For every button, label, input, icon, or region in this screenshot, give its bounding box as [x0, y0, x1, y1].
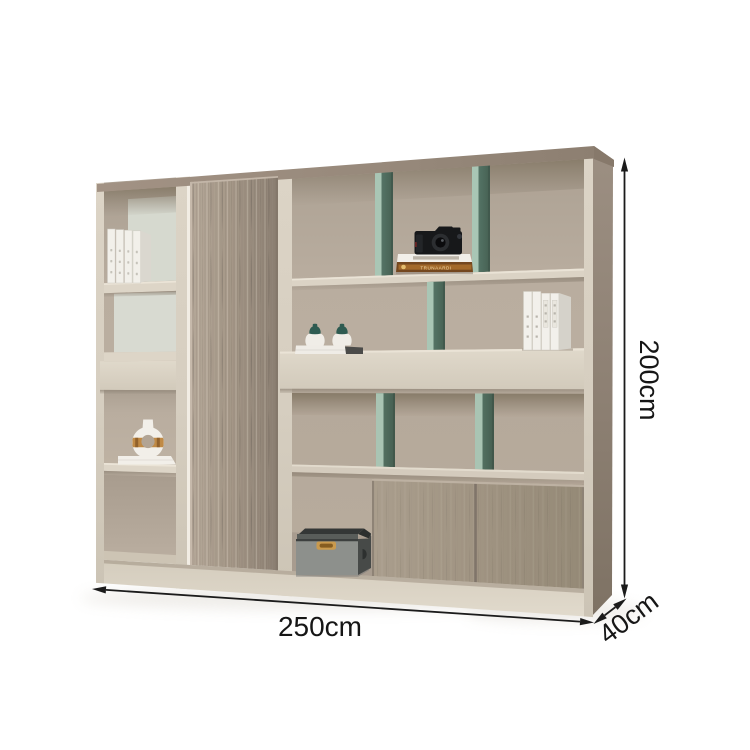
svg-text:TRUNAARDI: TRUNAARDI: [420, 265, 451, 270]
svg-text:250cm: 250cm: [278, 611, 362, 642]
svg-text:200cm: 200cm: [634, 339, 664, 420]
